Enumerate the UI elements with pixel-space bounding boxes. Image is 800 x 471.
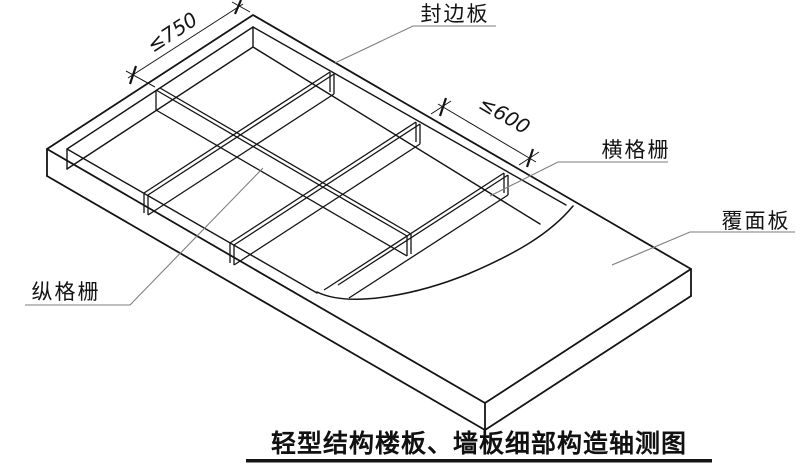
label-edge-board: 封边板: [421, 2, 490, 26]
longitudinal-joist-top-edges: [156, 88, 411, 236]
label-cover-panel: 覆面板: [722, 209, 791, 233]
cover-panel-leader: [612, 232, 795, 265]
transverse-joist-3: [324, 173, 508, 298]
panel-vertical-edges: [47, 149, 691, 430]
longitudinal-joist-end-verticals: [156, 90, 411, 256]
drawing-title: 轻型结构楼板、墙板细部构造轴测图: [271, 429, 687, 458]
dimension-750: ≤750: [126, 0, 250, 87]
panel-outline: [47, 15, 691, 430]
edge-board-leader: [335, 26, 496, 63]
dimension-600-text: ≤600: [475, 91, 535, 139]
transverse-joist-3-web-bottom: [349, 195, 508, 298]
label-transverse-joist: 横格栅: [602, 138, 671, 162]
drawing-canvas: ≤750 ≤600 封边板 横格栅 纵格栅 覆面板 轻型结构楼板、墙板细部构造轴…: [0, 0, 800, 471]
axonometric-diagram: ≤750 ≤600 封边板 横格栅 纵格栅 覆面板 轻型结构楼板、墙板细部构造轴…: [0, 0, 800, 471]
label-longitudinal-joist: 纵格栅: [32, 280, 101, 304]
longitudinal-joist: [156, 88, 411, 256]
edge-board-ring: [67, 27, 566, 293]
edge-board-inner-face-bottoms: [67, 47, 540, 224]
dimension-600: ≤600: [431, 91, 539, 167]
transverse-joist-3-top-edges: [324, 173, 508, 290]
edge-board-inner-top-edges: [67, 27, 566, 293]
drawing-title-underline: [246, 459, 712, 463]
